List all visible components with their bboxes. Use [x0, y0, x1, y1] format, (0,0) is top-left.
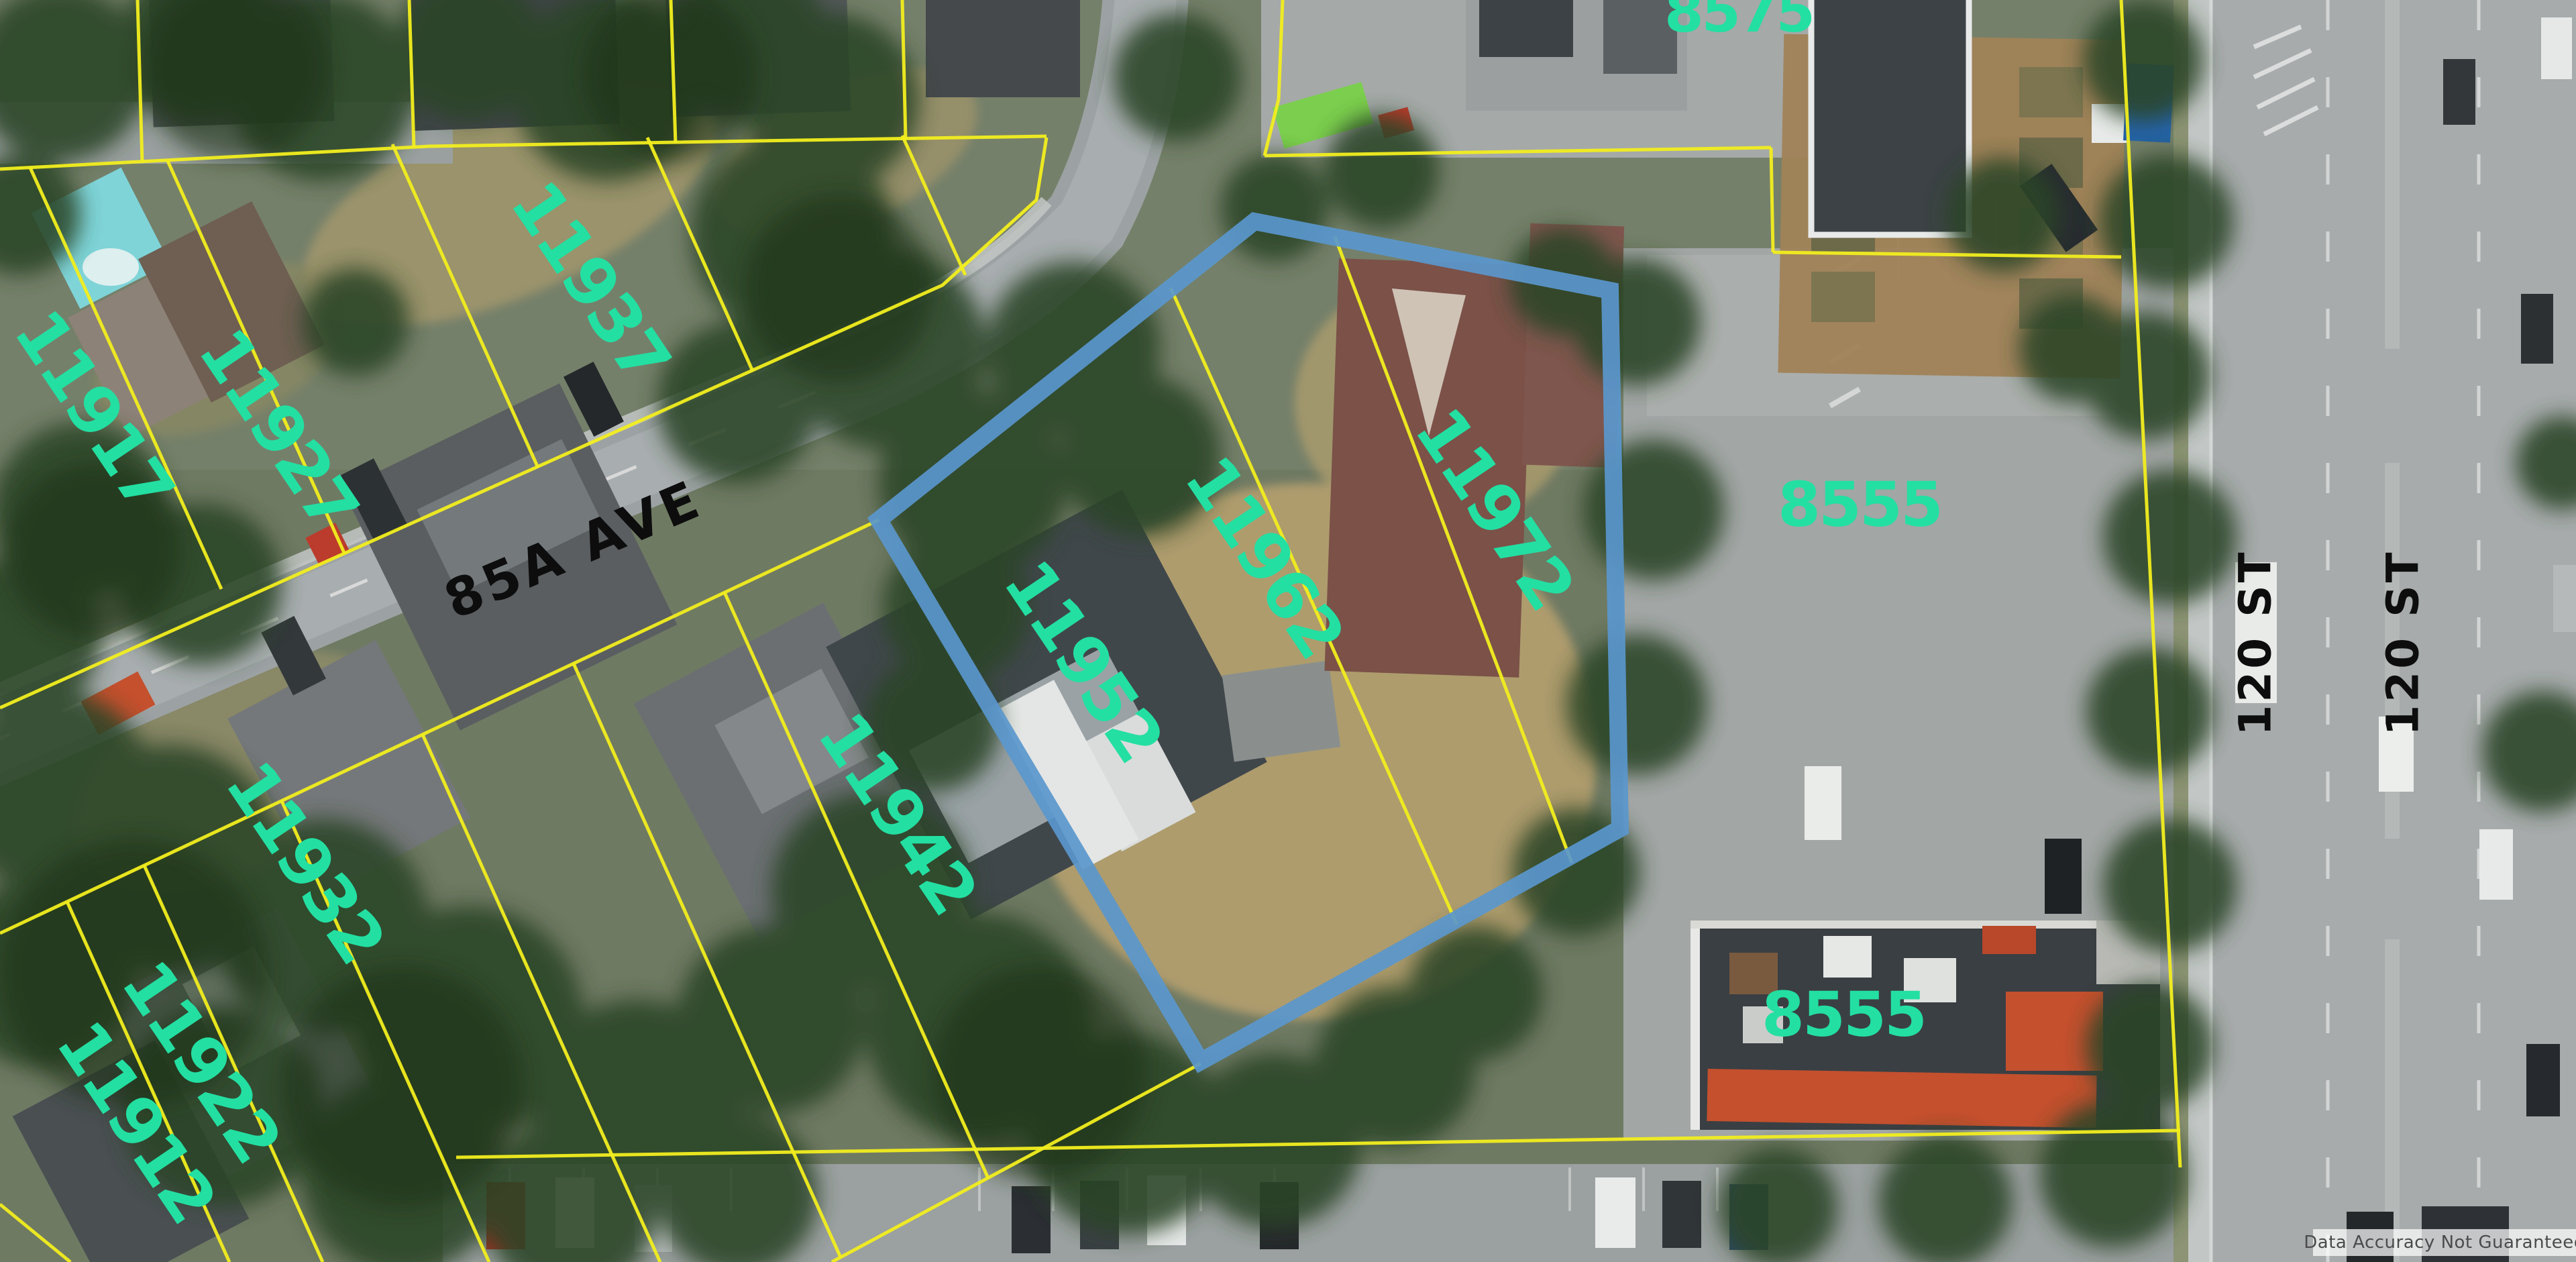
car	[1595, 1177, 1635, 1248]
car	[1662, 1181, 1701, 1248]
car	[2541, 17, 2572, 79]
map-viewport[interactable]: 1193711927119171193211922119121194211952…	[0, 0, 2576, 1262]
street-label-120-st: 120 ST	[2377, 549, 2429, 735]
accuracy-disclaimer-text: Data Accuracy Not Guaranteed	[2304, 1232, 2576, 1253]
car	[2526, 1044, 2560, 1116]
commercial-building	[1811, 0, 1969, 235]
shed	[1222, 660, 1341, 761]
accuracy-disclaimer: Data Accuracy Not Guaranteed	[2313, 1229, 2576, 1256]
house	[926, 0, 1080, 97]
aerial-map: 1193711927119171193211922119121194211952…	[0, 0, 2576, 1262]
parcel-label-8575: 8575	[1664, 0, 1813, 45]
car	[2479, 829, 2513, 900]
street-label-120-st: 120 ST	[2230, 549, 2282, 735]
car	[2443, 59, 2475, 125]
car	[1805, 766, 1841, 840]
parcel-label-8555: 8555	[1762, 979, 1925, 1051]
car	[2045, 839, 2082, 914]
car	[1012, 1186, 1051, 1253]
car	[2521, 294, 2553, 364]
car	[2553, 565, 2576, 632]
parcel-line	[1771, 148, 1773, 252]
parcel-label-8555: 8555	[1778, 469, 1941, 541]
